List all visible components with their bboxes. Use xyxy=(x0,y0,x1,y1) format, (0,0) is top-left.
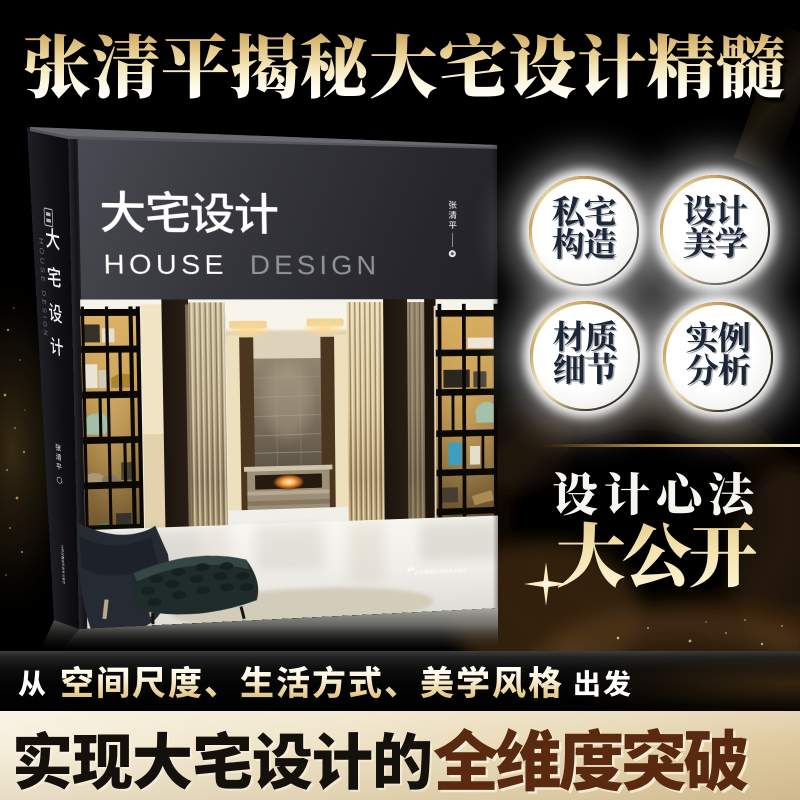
svg-text:HOUSE DESIGN: HOUSE DESIGN xyxy=(38,237,49,339)
